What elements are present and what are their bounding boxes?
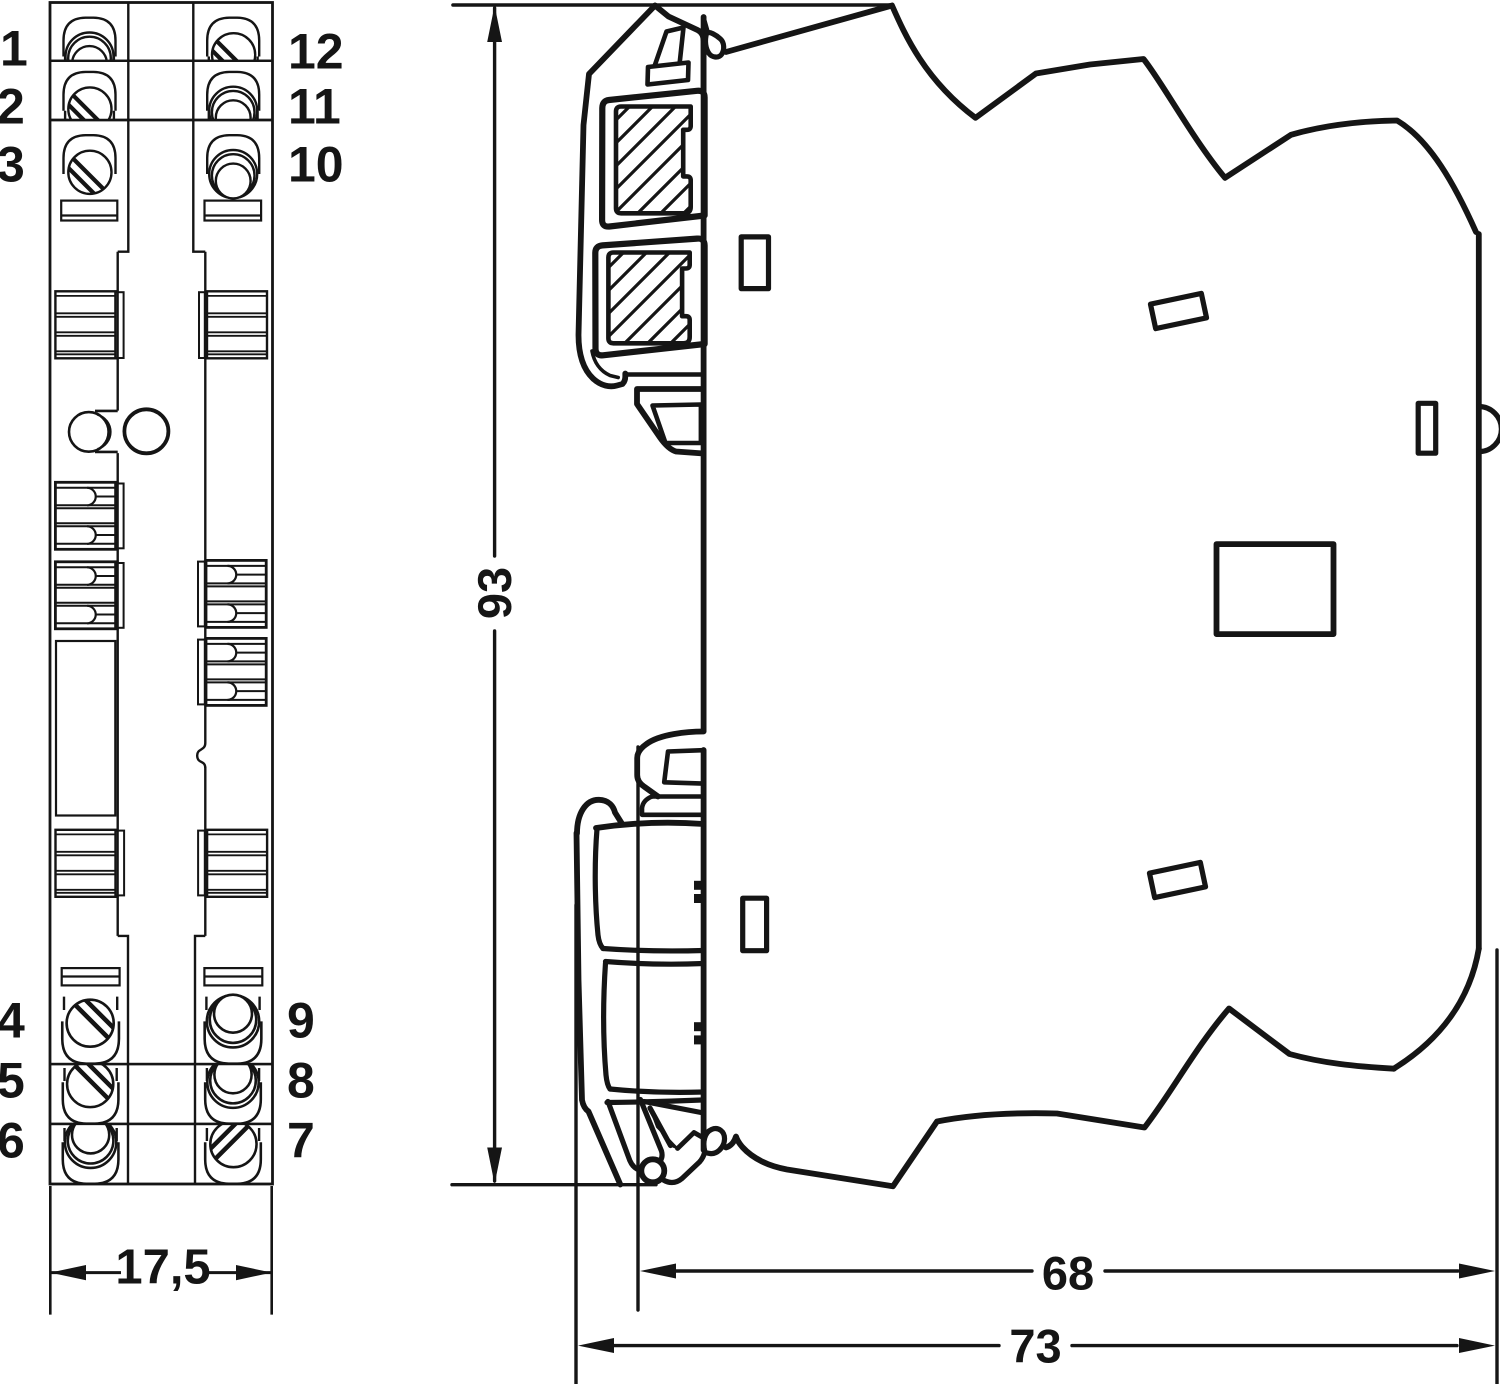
svg-text:8: 8 (287, 1053, 315, 1109)
svg-text:3: 3 (0, 137, 25, 193)
svg-text:2: 2 (0, 79, 25, 135)
svg-text:17,5: 17,5 (115, 1241, 210, 1295)
svg-text:12: 12 (288, 24, 344, 80)
svg-text:5: 5 (0, 1053, 25, 1109)
svg-text:93: 93 (468, 567, 521, 619)
svg-text:9: 9 (287, 993, 315, 1049)
svg-text:68: 68 (1042, 1247, 1094, 1300)
svg-text:1: 1 (0, 21, 28, 77)
svg-text:10: 10 (288, 137, 344, 193)
svg-text:6: 6 (0, 1113, 25, 1169)
svg-text:73: 73 (1009, 1320, 1061, 1373)
svg-text:7: 7 (287, 1113, 315, 1169)
svg-text:4: 4 (0, 993, 25, 1049)
svg-text:11: 11 (288, 79, 341, 135)
